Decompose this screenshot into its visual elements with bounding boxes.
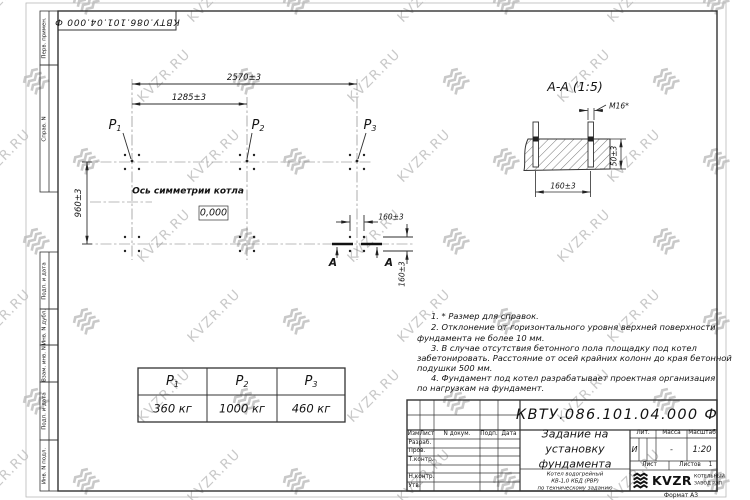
margin-label-inv-n-podl: Инв. N подл.: [42, 447, 48, 483]
drawing-subtitle-line3: по техническому заданию: [538, 486, 613, 491]
load-table-value-p3: 460 кг: [292, 403, 331, 415]
row-label-tkontr: Т.контр.: [409, 458, 434, 464]
paper-edge: [26, 3, 726, 497]
sheets-label: Листов: [679, 463, 701, 469]
lit-header: Лит.: [636, 431, 649, 437]
row-label-nkontr: Н.контр.: [409, 475, 435, 481]
load-table-value-p2: 1000 кг: [219, 403, 265, 415]
margin-label-perv-primen: Перв. примен.: [42, 17, 48, 58]
doc-number: КВТУ.086.101.04.000 Ф: [516, 407, 718, 422]
margin-label-podp-data-1: Подп. и дата: [42, 262, 48, 299]
load-point-label-p2: P2: [252, 119, 265, 133]
note-line: подушки 500 мм.: [417, 363, 492, 371]
drawing-sheet: KVZR.RUKVZR.RUKVZR.RUKVZR.RUKVZR.RUKVZR.…: [0, 0, 750, 500]
section-dim-spacing: 160±3: [550, 182, 575, 190]
row-label-utv: Утв.: [409, 484, 421, 490]
note-line: 1. * Размер для справок.: [431, 311, 539, 319]
load-table-header-p2: P2: [236, 375, 249, 389]
section-letter-right: А: [385, 257, 393, 268]
stamp-doc-number: КВТУ.086.101.04.000 Ф: [54, 16, 179, 25]
symmetry-axis-label: Ось симметрии котла: [132, 187, 244, 196]
margin-label-vzam-inv-n: Взам. инв. N: [42, 346, 48, 382]
drawing-subtitle-line1: Котел водогрейный: [547, 472, 604, 477]
margin-label-inv-n-dubl: Инв. N дубл.: [42, 309, 48, 345]
dim-height: 960±3: [75, 189, 84, 218]
company-sub1: КОТЕЛЬНЫЙ: [694, 475, 725, 480]
load-point-label-p3: P3: [364, 119, 377, 133]
col-header-izm: Изм: [408, 432, 420, 438]
company-name: KVZR: [652, 475, 692, 488]
dim-bolt-spacing-v: 160±3: [398, 261, 406, 286]
note-line: фундамента не более 10 мм.: [417, 333, 544, 341]
note-line: забетонировать. Расстояние от осей крайн…: [417, 353, 732, 361]
load-table-header-p3: P3: [305, 375, 318, 389]
col-header-data: Дата: [501, 432, 516, 438]
note-line: 4. Фундамент под котел разрабатывает про…: [431, 373, 715, 381]
anchor-bolt-points: [124, 154, 365, 252]
mass-value: -: [670, 446, 673, 454]
section-title: А-А (1:5): [547, 81, 602, 94]
drawing-title-line1: Задание на: [542, 429, 609, 440]
margin-label-podp-data-2: Подп. и дата: [42, 392, 48, 429]
dim-width-half: 1285±3: [172, 94, 206, 103]
sheets-value: 1: [709, 463, 713, 469]
mass-header: Масса: [662, 431, 680, 437]
margin-label-sprav-n: Справ. N: [42, 116, 48, 141]
load-point-label-p1: P1: [109, 119, 122, 133]
drawing-title-line2: установку: [545, 444, 604, 455]
drawing-linework: [0, 0, 750, 500]
elevation-mark: 0,000: [200, 208, 227, 218]
scale-header: Масштаб: [688, 431, 716, 437]
row-label-razrab: Разраб.: [409, 441, 432, 447]
col-header-list: Лист: [420, 432, 435, 438]
sheet-label: Лист: [642, 463, 657, 469]
col-header-ndokum: N докум.: [444, 432, 471, 438]
drawing-title-line3: фундамента: [539, 458, 612, 469]
col-header-podp: Подп.: [480, 432, 498, 438]
scale-value: 1:20: [692, 445, 711, 454]
lit-value: И: [632, 446, 638, 454]
note-line: по нагрузкам на фундамент.: [417, 383, 544, 391]
section-dim-height: 50±3: [610, 146, 618, 167]
row-label-prov: Пров.: [409, 449, 426, 455]
format-label: Формат А3: [664, 493, 698, 499]
note-line: 2. Отклонение от горизонтального уровня …: [431, 323, 716, 331]
load-table-value-p1: 360 кг: [153, 403, 192, 415]
kvzr-logo-icon: [632, 472, 649, 493]
section-letter-left: А: [329, 257, 337, 268]
note-line: 3. В случае отсутствия бетонного пола пл…: [431, 343, 697, 351]
dim-bolt-spacing-h: 160±3: [378, 213, 403, 221]
drawing-subtitle-line2: КВ-1,0 КБД (РВР): [551, 479, 599, 484]
bolt-thread-label: М16*: [609, 102, 629, 110]
company-sub2: ЗАВОД РЭП: [694, 482, 722, 487]
dim-width-total: 2570±3: [227, 74, 261, 83]
load-table-header-p1: P1: [166, 375, 179, 389]
